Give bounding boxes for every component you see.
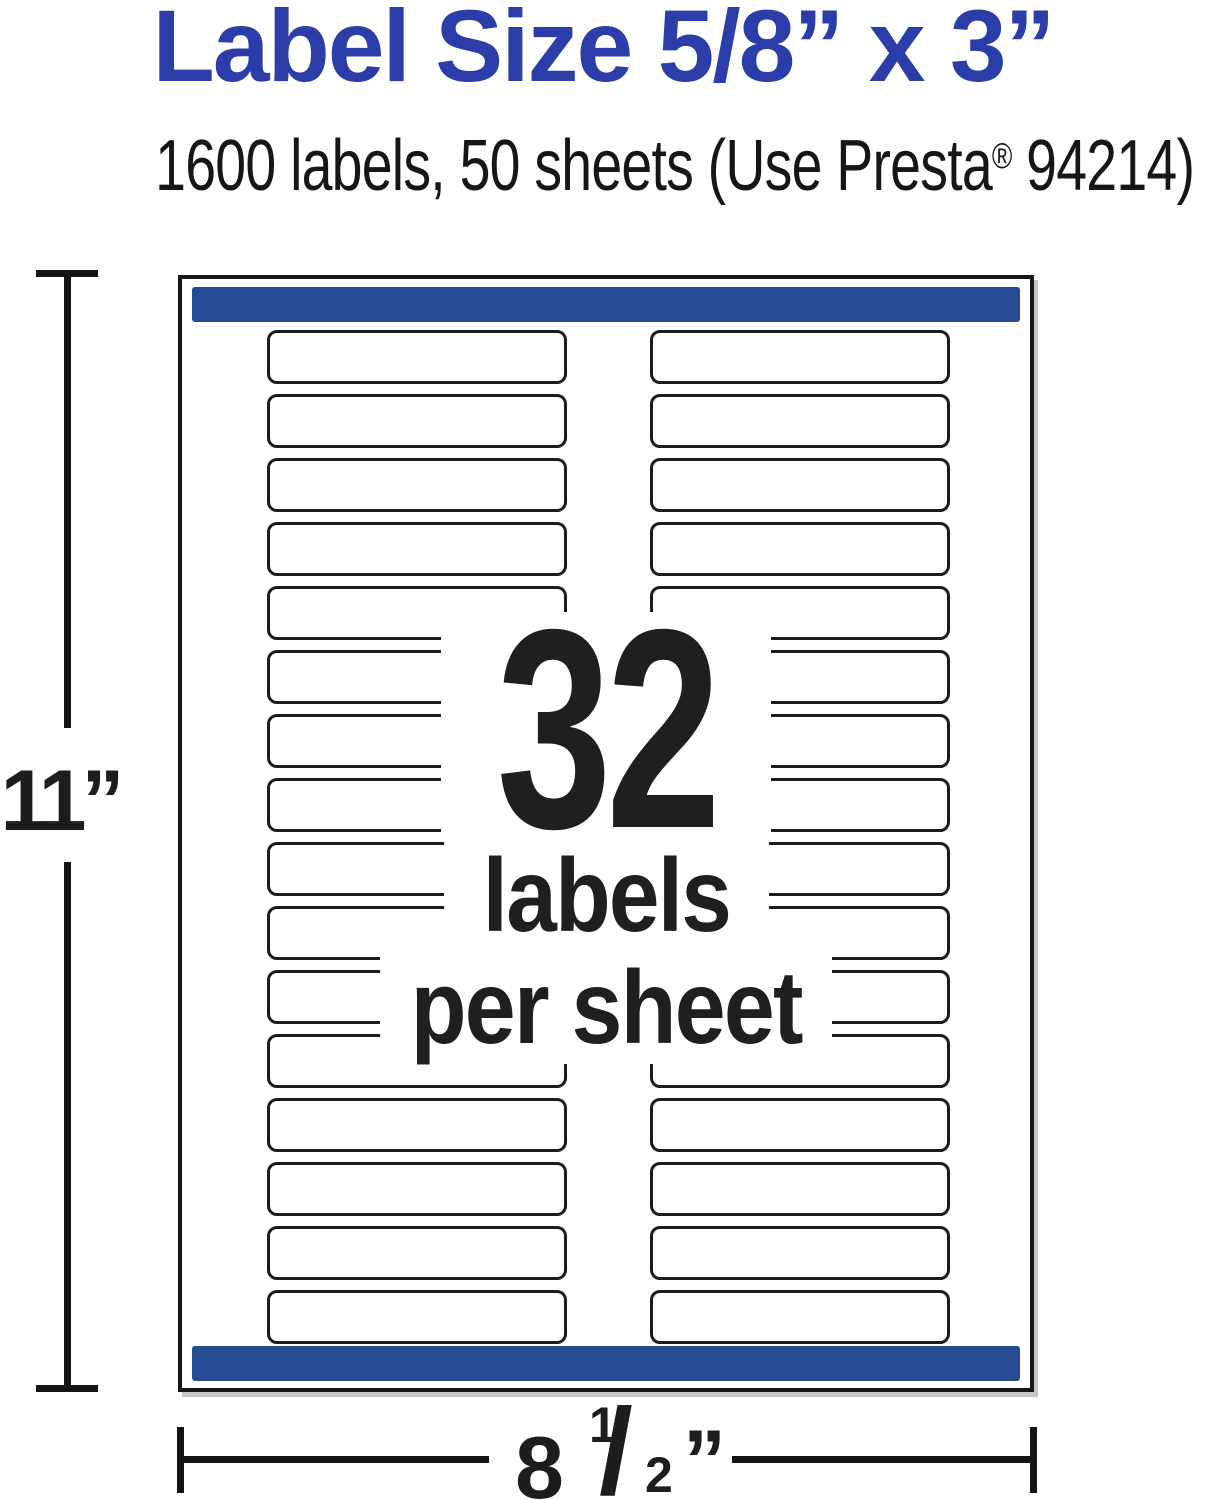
label-cell bbox=[267, 394, 567, 448]
height-dimension-label: 11” bbox=[0, 758, 126, 844]
label-cell bbox=[650, 1098, 950, 1152]
height-dimension-line-upper bbox=[64, 270, 71, 728]
label-cell bbox=[650, 394, 950, 448]
width-whole-number: 8 bbox=[515, 1424, 564, 1500]
label-cell bbox=[650, 1290, 950, 1344]
label-cell bbox=[650, 1226, 950, 1280]
label-cell bbox=[267, 1098, 567, 1152]
label-sheet: 32 labels per sheet bbox=[178, 275, 1034, 1392]
height-dimension-line-lower bbox=[64, 862, 71, 1392]
labels-count-per-sheet-box: per sheet bbox=[380, 952, 832, 1064]
width-dimension-tick-right bbox=[1030, 1427, 1037, 1493]
subtitle-pre: 1600 labels, 50 sheets (Use Presta bbox=[155, 126, 992, 206]
registered-trademark-symbol: ® bbox=[992, 135, 1012, 176]
page-title: Label Size 5/8” x 3” bbox=[0, 0, 1206, 108]
label-cell bbox=[267, 1162, 567, 1216]
label-cell bbox=[650, 458, 950, 512]
width-inch-mark: ” bbox=[683, 1418, 726, 1500]
top-accent-bar bbox=[192, 287, 1020, 322]
subtitle-text: 1600 labels, 50 sheets (Use Presta® 9421… bbox=[155, 116, 1194, 228]
label-cell bbox=[650, 522, 950, 576]
label-cell bbox=[267, 458, 567, 512]
subtitle-post: 94214) bbox=[1012, 126, 1195, 206]
labels-count-overlay: 32 labels per sheet bbox=[182, 612, 1030, 1064]
page-subtitle: 1600 labels, 50 sheets (Use Presta® 9421… bbox=[0, 116, 1206, 228]
width-dimension-line-left bbox=[177, 1456, 489, 1463]
label-product-diagram: Label Size 5/8” x 3” 1600 labels, 50 she… bbox=[0, 0, 1206, 1500]
label-cell bbox=[650, 330, 950, 384]
label-cell bbox=[267, 330, 567, 384]
labels-count-number: 32 bbox=[497, 616, 716, 844]
width-dimension-label: 8 1 / 2 ” bbox=[487, 1398, 733, 1500]
width-dimension-line-right bbox=[732, 1456, 1037, 1463]
height-dimension-tick-bottom bbox=[36, 1385, 98, 1392]
label-cell bbox=[650, 1162, 950, 1216]
width-fraction-denominator: 2 bbox=[645, 1450, 673, 1500]
label-cell bbox=[267, 522, 567, 576]
labels-count-word: labels bbox=[482, 840, 729, 952]
width-fraction-slash: / bbox=[599, 1390, 633, 1500]
labels-count-per-sheet: per sheet bbox=[410, 952, 801, 1064]
label-cell bbox=[267, 1226, 567, 1280]
labels-count-number-box: 32 bbox=[441, 612, 771, 840]
labels-count-word-box: labels bbox=[444, 840, 769, 952]
label-cell bbox=[267, 1290, 567, 1344]
